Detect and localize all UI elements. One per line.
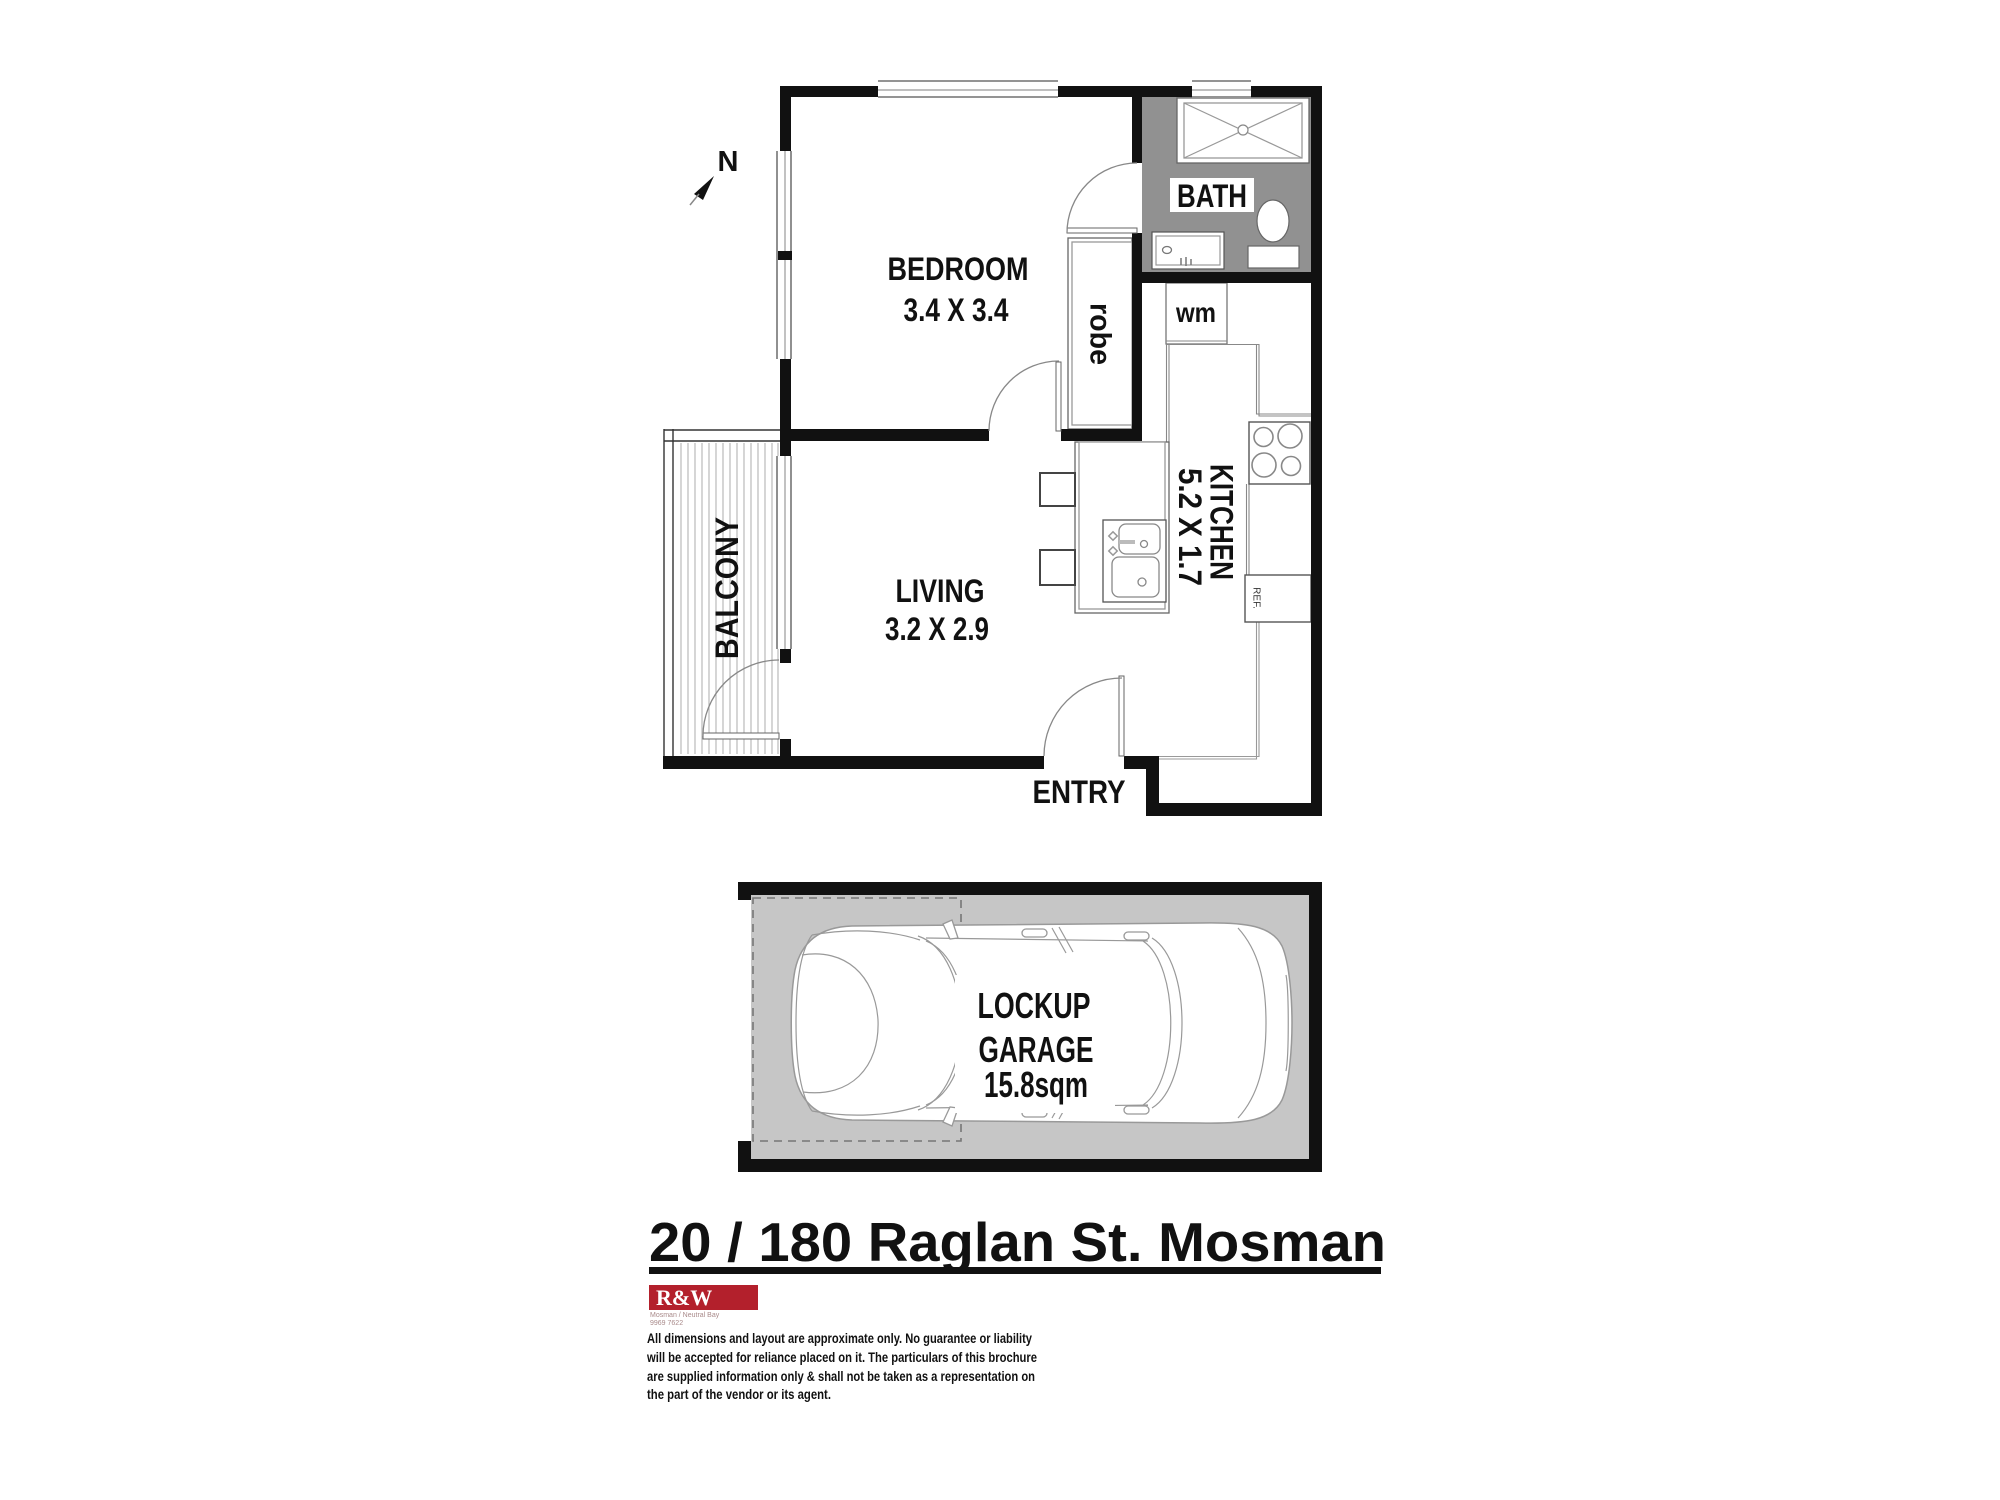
svg-text:wm: wm xyxy=(1175,297,1216,328)
svg-text:will be accepted for reliance: will be accepted for reliance placed on … xyxy=(646,1350,1037,1365)
svg-text:3.2 X 2.9: 3.2 X 2.9 xyxy=(885,611,989,647)
svg-text:robe: robe xyxy=(1084,303,1117,365)
svg-text:BATH: BATH xyxy=(1177,178,1247,214)
svg-text:the part of the vendor or its: the part of the vendor or its agent. xyxy=(647,1387,831,1402)
svg-text:LOCKUP: LOCKUP xyxy=(978,985,1091,1026)
svg-text:R&W: R&W xyxy=(656,1285,712,1310)
svg-text:LIVING: LIVING xyxy=(896,573,985,609)
svg-text:20 / 180 Raglan St. Mosman: 20 / 180 Raglan St. Mosman xyxy=(649,1211,1386,1273)
svg-text:Mosman / Neutral Bay: Mosman / Neutral Bay xyxy=(650,1312,720,1319)
svg-text:15.8sqm: 15.8sqm xyxy=(984,1064,1088,1105)
svg-text:9969 7622: 9969 7622 xyxy=(650,1320,683,1327)
svg-text:REF.: REF. xyxy=(1251,587,1262,609)
svg-text:N: N xyxy=(718,146,739,178)
svg-text:BALCONY: BALCONY xyxy=(709,517,745,659)
svg-text:are supplied information only: are supplied information only & shall no… xyxy=(647,1369,1035,1384)
svg-text:BEDROOM: BEDROOM xyxy=(888,251,1029,287)
svg-text:All dimensions and layout are: All dimensions and layout are approximat… xyxy=(647,1331,1032,1346)
svg-text:3.4 X 3.4: 3.4 X 3.4 xyxy=(904,292,1009,328)
svg-text:5.2 X 1.7: 5.2 X 1.7 xyxy=(1172,468,1208,586)
svg-text:ENTRY: ENTRY xyxy=(1033,774,1126,810)
